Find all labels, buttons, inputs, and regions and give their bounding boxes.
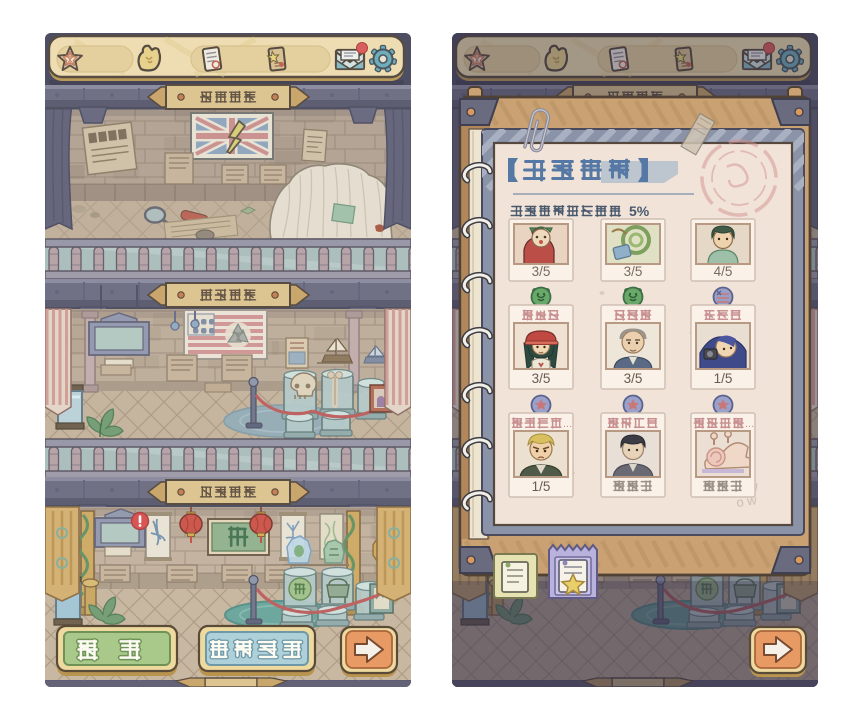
- svg-text:3/5: 3/5: [624, 371, 643, 386]
- svg-text:1/5: 1/5: [714, 371, 733, 386]
- svg-text:...: ...: [563, 418, 572, 430]
- svg-text:1/5: 1/5: [532, 479, 551, 494]
- svg-text:3/5: 3/5: [532, 371, 551, 386]
- svg-text:4/5: 4/5: [714, 264, 733, 279]
- svg-text:3/5: 3/5: [624, 264, 643, 279]
- svg-text:3/5: 3/5: [532, 264, 551, 279]
- svg-text:5%: 5%: [629, 203, 650, 219]
- svg-text:...: ...: [745, 418, 754, 430]
